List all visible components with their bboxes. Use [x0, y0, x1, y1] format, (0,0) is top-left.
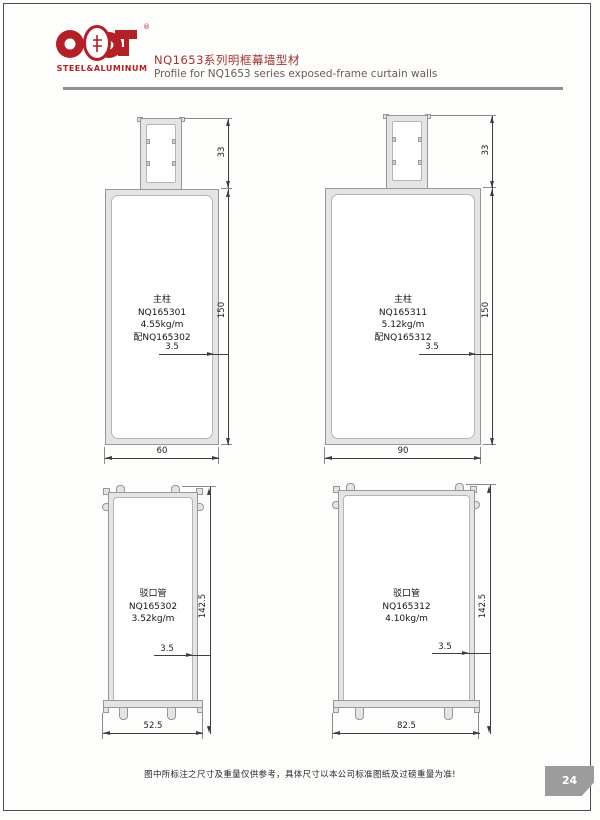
profile-name: 驳口管: [338, 588, 475, 601]
profile-match: 配NQ165312: [325, 332, 481, 345]
tube-hollow: [146, 124, 176, 183]
brand-name: STEEL&ALUMINUM: [50, 64, 154, 73]
dim-top: 33: [217, 130, 227, 174]
leader-line: [159, 354, 228, 355]
profile-code: NQ165301: [105, 307, 219, 320]
profile-name: 驳口管: [108, 588, 198, 601]
notch: [392, 160, 396, 165]
foot: [167, 707, 176, 720]
arrow: [490, 189, 494, 196]
dim-bottom: 82.5: [333, 721, 480, 731]
arrow: [226, 181, 230, 188]
tube-hollow: [392, 121, 422, 181]
arrow: [196, 731, 203, 735]
ext-line: [466, 484, 496, 485]
dim-line-82: [333, 733, 480, 734]
notch: [172, 161, 176, 166]
profile-name: 主柱: [325, 294, 481, 307]
profile-weight: 5.12kg/m: [325, 319, 481, 332]
foot: [119, 707, 128, 720]
notch: [418, 160, 422, 165]
dim-wall: 3.5: [430, 642, 460, 652]
ext-line: [184, 118, 232, 119]
profile-weight: 4.55kg/m: [105, 319, 219, 332]
title-cn: NQ1653系列明框幕墙型材: [154, 52, 300, 68]
arrow: [212, 456, 219, 460]
dim-bottom: 90: [325, 446, 481, 456]
dim-line-52: [103, 733, 203, 734]
profile-name: 主柱: [105, 294, 219, 307]
foot: [444, 707, 453, 720]
dim-wall: 3.5: [152, 644, 182, 654]
arrow: [325, 456, 332, 460]
notch: [418, 137, 422, 142]
bottom-flange: [103, 700, 203, 708]
page-border: [3, 3, 591, 811]
arrow: [490, 116, 494, 123]
arrow: [207, 488, 211, 495]
arrow: [490, 438, 494, 445]
catalog-page: ® STEEL&ALUMINUM NQ1653系列明框幕墙型材 Profile …: [0, 0, 600, 820]
arrow: [103, 731, 110, 735]
dim-side: 150: [481, 288, 491, 332]
title-en: Profile for NQ1653 series exposed-frame …: [154, 68, 437, 80]
profile-label: 驳口管 NQ165312 4.10kg/m: [338, 588, 475, 626]
dim-line-142: [210, 487, 211, 734]
notch: [172, 139, 176, 144]
notch: [392, 137, 396, 142]
profile-label: 主柱 NQ165301 4.55kg/m 配NQ165302: [105, 294, 219, 344]
profile-weight: 4.10kg/m: [338, 613, 475, 626]
ext-line: [430, 115, 496, 116]
arrow: [473, 731, 480, 735]
arrow: [207, 352, 214, 356]
dim-line-150: [492, 188, 493, 445]
arrow: [226, 438, 230, 445]
dim-side: 142.5: [478, 584, 488, 628]
arrow: [105, 456, 112, 460]
profile-code: NQ165312: [338, 601, 475, 614]
arrow: [226, 119, 230, 126]
header-rule: [63, 87, 563, 90]
arrow: [487, 486, 491, 493]
notch: [146, 139, 150, 144]
profile-label: 主柱 NQ165311 5.12kg/m 配NQ165312: [325, 294, 481, 344]
arrow: [469, 352, 476, 356]
profile-code: NQ165311: [325, 307, 481, 320]
profile-label: 驳口管 NQ165302 3.52kg/m: [108, 588, 198, 626]
registered-mark: ®: [143, 23, 150, 31]
dim-bottom: 52.5: [103, 721, 203, 731]
notch: [146, 161, 150, 166]
arrow: [207, 726, 211, 733]
leader-line: [432, 653, 490, 654]
brand-logo: [53, 24, 149, 66]
arrow: [490, 181, 494, 188]
foot: [355, 707, 364, 720]
dim-side: 150: [217, 288, 227, 332]
profile-weight: 3.52kg/m: [108, 613, 198, 626]
arrow: [226, 190, 230, 197]
arrow: [474, 456, 481, 460]
dim-line-60: [105, 458, 219, 459]
dim-wall: 3.5: [157, 342, 187, 352]
leader-line: [419, 354, 492, 355]
dim-side: 142.5: [198, 584, 208, 628]
arrow: [333, 731, 340, 735]
dim-top: 33: [481, 128, 491, 172]
dim-line-33: [228, 119, 229, 188]
ext-line: [221, 188, 232, 189]
leader-line: [154, 655, 210, 656]
dim-wall: 3.5: [417, 342, 447, 352]
arrow: [487, 726, 491, 733]
dim-bottom: 60: [105, 446, 219, 456]
arrow: [462, 651, 469, 655]
dim-line-33: [492, 116, 493, 188]
profile-code: NQ165302: [108, 601, 198, 614]
dim-line-90: [325, 458, 481, 459]
dim-line-142: [490, 485, 491, 734]
arrow: [186, 653, 193, 657]
dim-line-150: [228, 189, 229, 445]
footer-note: 图中所标注之尺寸及重量仅供参考，具体尺寸以本公司标准图纸及过磅重量为准!: [0, 768, 600, 780]
